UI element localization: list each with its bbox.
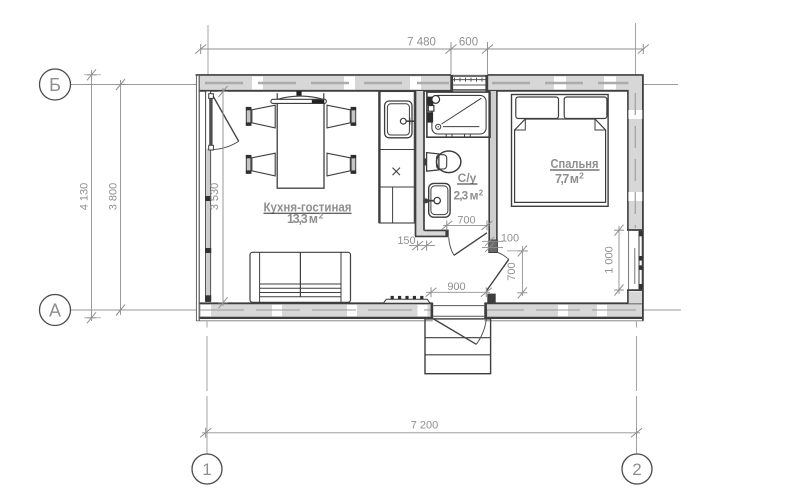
svg-text:Спальня: Спальня xyxy=(551,157,599,171)
svg-text:3 800: 3 800 xyxy=(108,183,120,211)
svg-text:А: А xyxy=(49,301,61,321)
svg-text:2: 2 xyxy=(579,171,584,181)
svg-text:С/у: С/у xyxy=(458,171,477,185)
svg-text:900: 900 xyxy=(447,281,465,293)
svg-text:100: 100 xyxy=(501,233,519,245)
svg-text:1: 1 xyxy=(202,460,211,479)
svg-text:Б: Б xyxy=(49,75,61,95)
svg-text:2: 2 xyxy=(479,188,484,197)
svg-text:7 480: 7 480 xyxy=(407,37,436,49)
svg-text:3 530: 3 530 xyxy=(209,183,221,211)
svg-text:2,3 м: 2,3 м xyxy=(454,189,479,203)
svg-text:700: 700 xyxy=(457,215,475,227)
svg-text:2: 2 xyxy=(319,210,324,220)
svg-text:2: 2 xyxy=(632,460,641,479)
svg-text:4 130: 4 130 xyxy=(79,183,91,211)
svg-text:150: 150 xyxy=(397,235,415,247)
svg-text:7 200: 7 200 xyxy=(411,420,439,432)
svg-text:700: 700 xyxy=(506,262,518,280)
svg-text:7,7 м: 7,7 м xyxy=(555,172,579,186)
svg-text:600: 600 xyxy=(459,37,478,49)
svg-text:1 000: 1 000 xyxy=(604,246,616,274)
svg-text:13,3 м: 13,3 м xyxy=(287,212,318,226)
